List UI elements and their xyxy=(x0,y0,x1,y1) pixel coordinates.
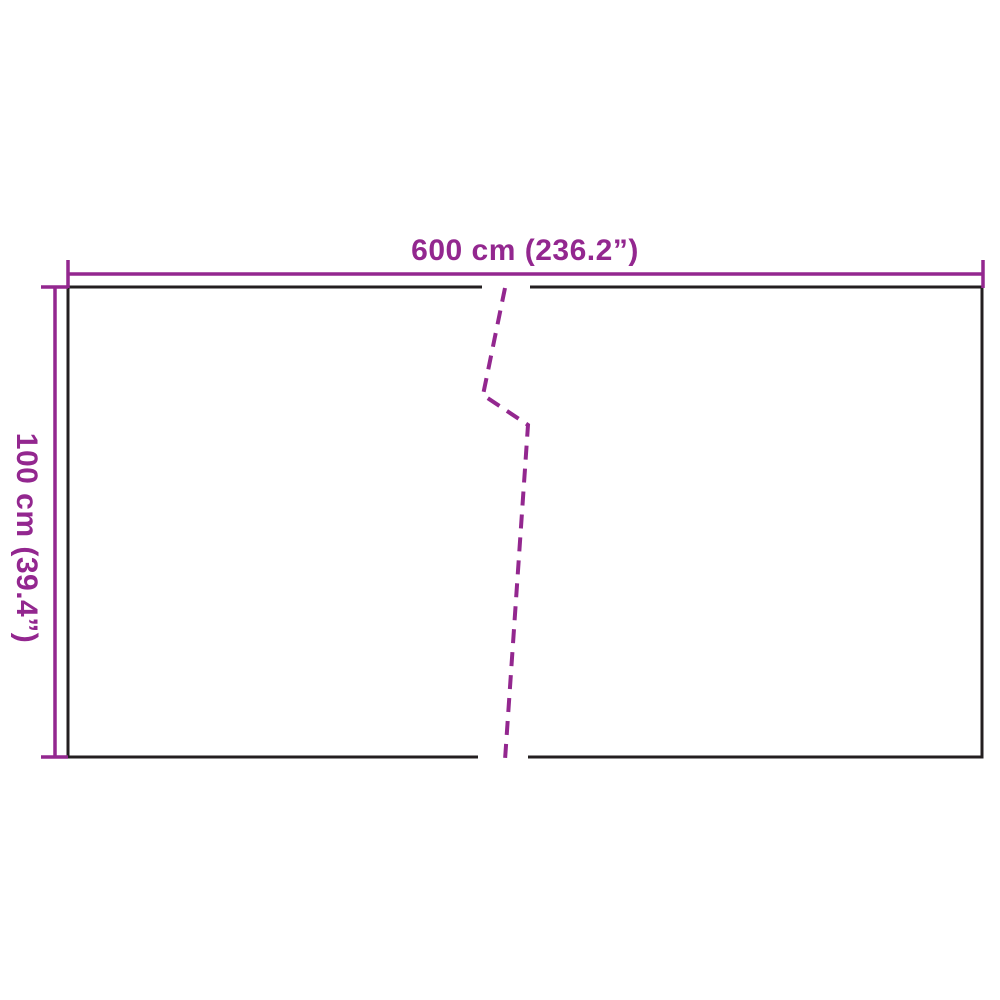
width-dimension-label: 600 cm (236.2”) xyxy=(375,236,675,266)
product-dimension-diagram: 600 cm (236.2”) 100 cm (39.4”) xyxy=(0,0,1000,1000)
break-line xyxy=(483,288,528,760)
panel-outline-right-half xyxy=(528,287,982,757)
panel-outline xyxy=(68,287,982,757)
height-dimension-line xyxy=(41,287,68,757)
panel-outline-left-half xyxy=(68,287,482,757)
diagram-canvas xyxy=(0,0,1000,1000)
height-dimension-label: 100 cm (39.4”) xyxy=(11,410,41,666)
